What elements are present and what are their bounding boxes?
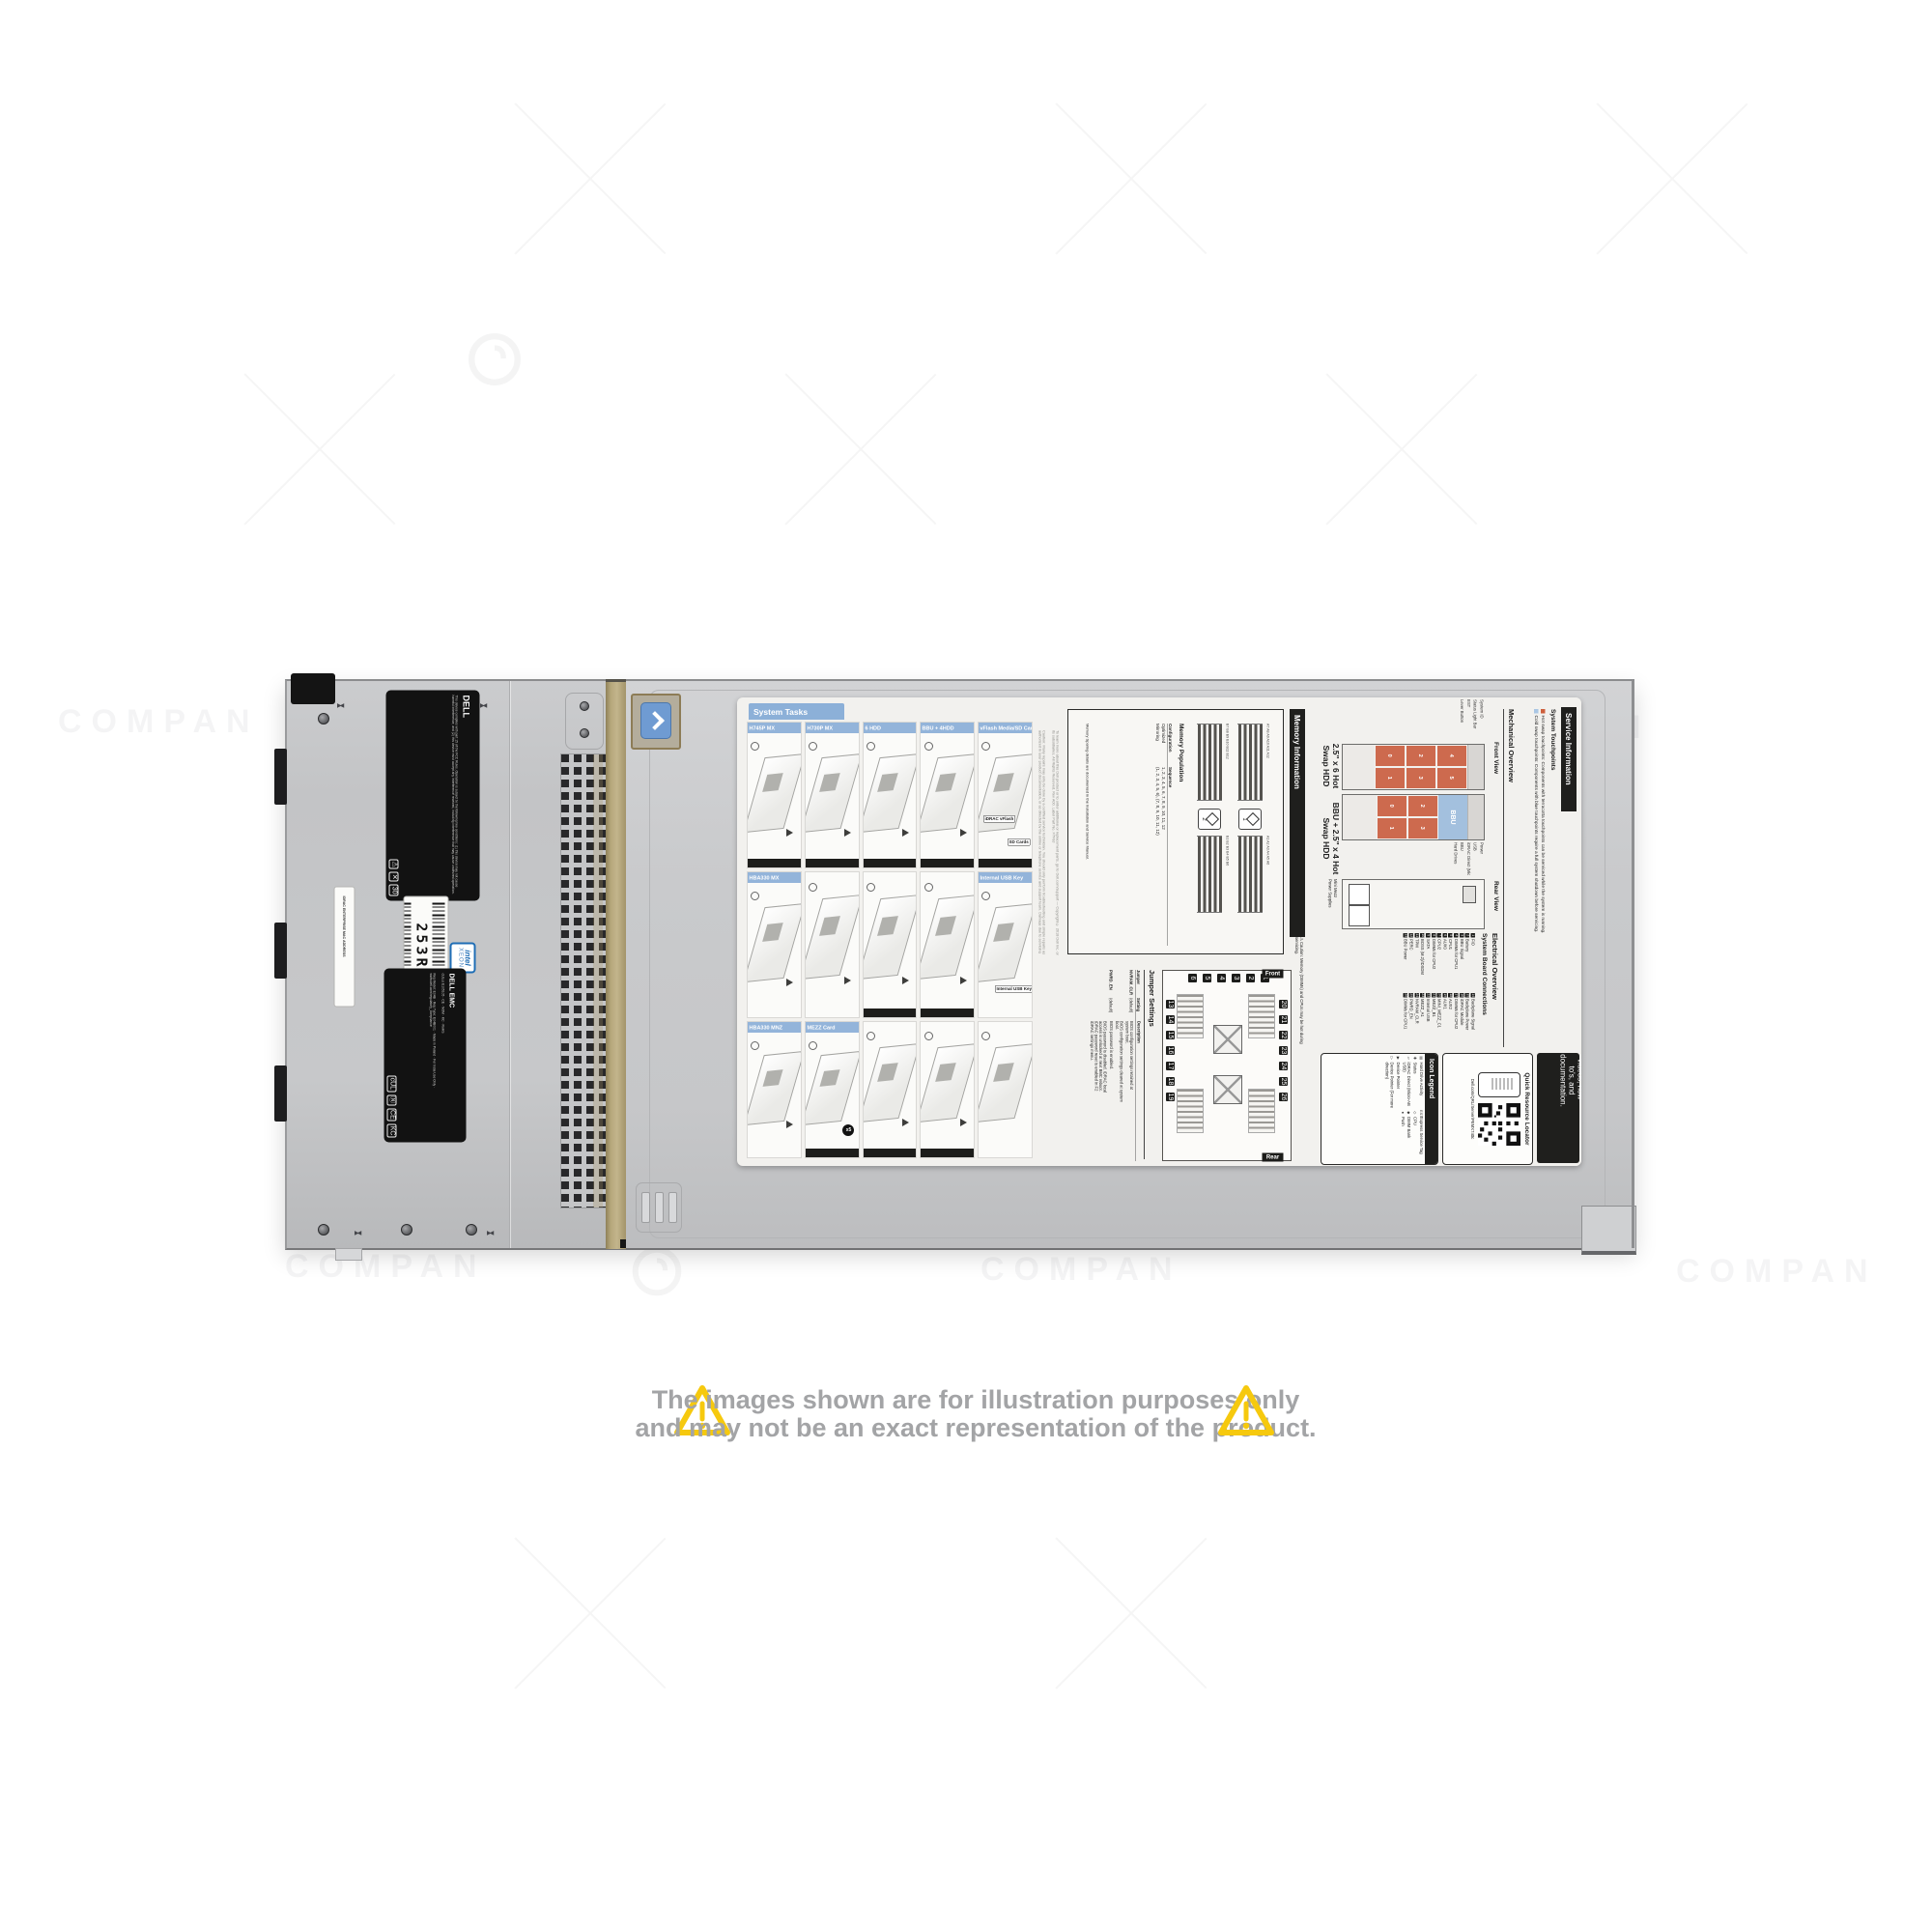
front-view-title: Front View	[1492, 742, 1499, 774]
legend-label: Device Pointer (For more direction)	[1384, 1063, 1394, 1109]
board-connections-col2: 14Backplane Signal15Backplane Power16iDR…	[1309, 993, 1475, 1051]
panel-title: vFlash Media/SD Card	[979, 725, 1032, 731]
jumper-name	[1090, 970, 1108, 996]
connection-number: 25	[1409, 993, 1414, 998]
dimm-slot-group	[1177, 1089, 1204, 1133]
rivet-mark: ▶◀	[487, 1230, 492, 1236]
hot-swap-text: Hot swap touchpoints: Components with te…	[1541, 716, 1547, 934]
panel-title: HBA330 MX	[748, 875, 779, 881]
task-panel-bbu4hdd: BBU + 4HDD	[920, 722, 975, 868]
connection-number: 21	[1432, 993, 1436, 998]
weee-bin-icon: ✕	[389, 872, 399, 882]
board-callout-number: 15	[1166, 1031, 1175, 1039]
connection-label: SATA	[1426, 939, 1431, 949]
connection-number: 7	[1437, 933, 1442, 938]
connection-label: MINI_MEZZ_C1	[1437, 999, 1442, 1028]
connection-label: DIMMs for CPU2	[1432, 939, 1436, 969]
bay-number: 1	[1389, 827, 1395, 830]
connection-label: Backplane Signal	[1470, 999, 1475, 1030]
board-callout-number: 19	[1166, 1093, 1175, 1101]
service-info-zone: Service Information System Touchpoints H…	[1065, 697, 1581, 1166]
edge-connector-tab	[274, 1065, 287, 1122]
release-latch	[291, 673, 335, 704]
dimm-bank: A7 A8 A9 A10 A11 A12	[1237, 724, 1269, 801]
embossed-vents	[636, 1182, 682, 1233]
connection-label: AUX1	[1442, 999, 1447, 1009]
legend-icon: ●	[1400, 1110, 1405, 1116]
connection-number: 11	[1414, 933, 1419, 938]
icon-legend-col2: ESTExpress Service Tag◇CPU◆DIMM Bank●Pus…	[1383, 1110, 1424, 1163]
callout-label: USB	[1471, 842, 1478, 875]
task-panel-internal-usb: Internal USB Key Internal USB Key	[978, 871, 1033, 1018]
jumper-name: NVRAM_CLR	[1124, 970, 1133, 996]
psu-block	[1349, 905, 1370, 926]
connection-number: 23	[1420, 993, 1425, 998]
cert-lines: Reg Model: E04B · Reg Type: E04B001 · Ma…	[429, 974, 437, 1138]
idrac-vflash-tag: iDRAC vFlash	[983, 815, 1015, 823]
panel-title: 6 HDD	[864, 725, 881, 731]
connection-label: DIMMs for CPU1	[1454, 939, 1459, 969]
dimm-bank-labels: B1 B2 B3 B4 B5 B6	[1225, 836, 1229, 912]
connection-number: 13	[1404, 933, 1408, 938]
mac-label-text: IDRAC ENTERPRISE MAC ADDRESS	[342, 896, 346, 957]
task-panel-mezz: MEZZ Card x5	[805, 1021, 860, 1158]
front-callouts-right: PowerUSBiDRAC Direct (Micro-AB USB)BBUHa…	[1340, 842, 1485, 875]
bay-number: 3	[1420, 827, 1426, 830]
watermark-logo-icon	[628, 1242, 686, 1300]
cold-swap-text: Cold swap touchpoints: Components with b…	[1534, 716, 1540, 933]
system-board-connections-title: System Board Connections	[1481, 933, 1488, 1015]
gold-edge-strip	[606, 679, 626, 1249]
callout-label: Power	[1478, 842, 1485, 875]
bay-number: 0	[1389, 805, 1395, 808]
panel-title: H730P MX	[806, 725, 833, 731]
board-rear-label: Rear	[1263, 1153, 1284, 1162]
board-callout-number: 21	[1279, 1015, 1288, 1024]
panel-seam	[509, 681, 510, 1248]
task-illustration	[806, 874, 859, 1015]
watermark-x-icon	[1024, 72, 1236, 285]
board-callout-number: 20	[1279, 1000, 1288, 1009]
bay2-title: BBU + 2.5" x 4 Hot Swap HDD	[1321, 802, 1340, 875]
mini-mezz-block	[1463, 886, 1476, 903]
task-illustration	[979, 1024, 1032, 1155]
qr-code	[1478, 1103, 1520, 1146]
board-callout-number: 17	[1166, 1062, 1175, 1070]
legend-icon: ✚	[1412, 1056, 1417, 1062]
connection-number: 24	[1414, 993, 1419, 998]
task-illustration	[921, 1024, 974, 1155]
task-illustration	[979, 884, 1032, 1015]
connection-label: PWRD_EN	[1409, 999, 1414, 1019]
connection-label: TPM	[1414, 939, 1419, 948]
connection-number: 4	[1454, 933, 1459, 938]
callout-label: Hard Drives	[1452, 842, 1459, 875]
memory-population-table: Configuration Sequence Optimized 1, 2, 3…	[1154, 724, 1173, 946]
cert-marks: cULus E105105 · CE · NOM · KC · RoHS	[441, 974, 445, 1138]
recycle-30-icon: 30	[389, 885, 399, 896]
board-callout-number: 5	[1203, 974, 1211, 982]
connection-number: 18	[1448, 993, 1453, 998]
system-board-map: 20212223242526 123456 13141516171819	[1162, 970, 1292, 1161]
watermark-text: COMPAN	[980, 1251, 1182, 1289]
dell-emc-logo: DELL EMC	[448, 974, 455, 1009]
task-illustration	[921, 874, 974, 1015]
dimm-slot-group	[1248, 1089, 1275, 1133]
cover-release-button	[640, 702, 671, 739]
bay-number: 2	[1418, 754, 1424, 757]
task-panel-grid: H745P MX H730P MX 6 HDD	[747, 722, 1033, 1158]
dimm-bank: B7 B8 B9 B10 B11 B12	[1197, 724, 1229, 801]
cpu-socket	[1213, 1075, 1242, 1104]
connection-number: 22	[1426, 993, 1431, 998]
screw	[401, 1224, 412, 1236]
jumper-name: PWRD_EN	[1108, 970, 1113, 996]
watermark-x-icon	[1565, 72, 1777, 285]
n-mark-icon: Ⓝ	[387, 1094, 397, 1105]
connection-label: PERC	[1409, 939, 1414, 951]
task-panel-hba330mnz: HBA330 MNZ	[747, 1021, 802, 1158]
quick-resource-locator: Quick Resource Locator	[1442, 1053, 1533, 1165]
rear-foot-bracket	[1581, 1206, 1636, 1255]
ul-mark-icon: cUL	[387, 1076, 397, 1092]
connection-number: 20	[1437, 993, 1442, 998]
disclaimer-text: The images shown are for illustration pu…	[541, 1386, 1410, 1442]
connection-label: BBU Signal	[1460, 939, 1464, 959]
bay-number: 5	[1449, 777, 1455, 780]
tasks-caution-text: Caution: Many repairs may only be done b…	[1038, 730, 1045, 959]
connection-label: FIO	[1470, 939, 1475, 946]
x5-badge: x5	[842, 1124, 854, 1136]
edge-connector-tab	[274, 749, 287, 805]
cover-right-edge	[1632, 681, 1634, 1248]
hdd-bays-4: 2301	[1377, 795, 1438, 839]
dell-regulatory-label: DELL This device complies with part 15 o…	[386, 691, 480, 901]
front-view-sled-6hdd: 452301	[1342, 744, 1485, 790]
task-panel-h745p: H745P MX	[747, 722, 802, 868]
task-panel-step	[863, 1021, 918, 1158]
jumper-name	[1115, 970, 1123, 996]
front-foot-tab	[335, 1248, 362, 1261]
callout-label: Status Light Bar	[1471, 699, 1478, 742]
jumper-description: BIOS configuration settings cleared at s…	[1115, 1021, 1123, 1103]
bay-number: 1	[1387, 777, 1393, 780]
legend-label: Device Pointer	[1396, 1063, 1401, 1090]
connection-number: 8	[1432, 933, 1436, 938]
connection-number: 9	[1426, 933, 1431, 938]
connection-number: 19	[1442, 993, 1447, 998]
memory-sparing-note: Memory Sparing details are documented in…	[1086, 724, 1091, 946]
connection-number: 6	[1442, 933, 1447, 938]
task-panel-step	[920, 1021, 975, 1158]
warning-triangle-icon: ⚠	[389, 860, 399, 869]
task-panel-vflash: vFlash Media/SD Card iDRAC vFlash SD Car…	[978, 722, 1033, 868]
cover-release-frame	[631, 694, 681, 750]
connection-label: MEZZ_A1	[1420, 999, 1425, 1017]
task-illustration	[864, 734, 917, 866]
connection-number: 2	[1465, 933, 1470, 938]
kc-mark-icon: KC	[387, 1124, 397, 1138]
jumper-setting: (default)	[1124, 998, 1133, 1019]
mini-mezz-label: Mini Mezz	[1332, 879, 1338, 937]
cold-swap-swatch	[1534, 709, 1539, 714]
task-panel-step	[863, 871, 918, 1018]
rear-view-title: Rear View	[1492, 881, 1499, 911]
bay-number: 4	[1449, 754, 1455, 757]
system-tasks-zone: System Tasks H745P MX H730P MX	[737, 697, 1070, 1166]
tasks-copyright-text: To learn more about this Dell product or…	[1052, 730, 1059, 959]
rivet-mark: ▶◀	[337, 702, 342, 709]
memory-information-bar: Memory Information	[1290, 709, 1305, 937]
qrl-title: Quick Resource Locator	[1523, 1054, 1530, 1164]
screw	[318, 713, 329, 724]
dimm-bank-labels: B7 B8 B9 B10 B11 B12	[1225, 724, 1229, 800]
rivet-mark: ▶◀	[480, 702, 485, 709]
disclaimer: The images shown are for illustration pu…	[0, 1377, 1932, 1463]
dimm-slots	[1197, 724, 1222, 801]
callout-label: iDRAC Direct (Micro-AB USB)	[1465, 842, 1472, 875]
screw	[580, 728, 589, 738]
watermark-x-icon	[753, 343, 966, 555]
watermark-x-icon	[213, 343, 425, 555]
dimm-bank-labels: A1 A2 A3 A4 A5 A6	[1265, 836, 1269, 912]
watermark-x-icon	[1024, 1507, 1236, 1719]
legend-icon: ▱	[1402, 1056, 1411, 1062]
rivet-mark: ▶◀	[355, 1230, 359, 1236]
dimm-slot-group	[1177, 994, 1204, 1038]
electrical-overview-title: Electrical Overview	[1491, 933, 1499, 1000]
connection-number: 1	[1471, 933, 1476, 938]
bbu-block: BBU	[1438, 795, 1467, 839]
dimm-slot-group	[1248, 994, 1275, 1038]
service-information-bar: Service Information	[1561, 707, 1577, 811]
legend-icon: ▤	[1419, 1056, 1424, 1062]
callout-label: Lever Button	[1459, 699, 1465, 742]
front-view-sled-bbu4hdd: BBU 2301	[1342, 794, 1485, 840]
legend-label: Status	[1412, 1063, 1417, 1074]
callout-label: EST	[1465, 699, 1472, 742]
legend-label: iDRAC Direct (Micro-AB USB)	[1402, 1063, 1411, 1109]
system-touchpoints-title: System Touchpoints	[1549, 709, 1556, 770]
product-photo-stage: COMPAN COMPAN COMPAN COMPAN COMPAN COMPA…	[0, 0, 1932, 1932]
board-front-label: Front	[1263, 970, 1284, 979]
chassis-left-panel: ▶◀ ▶◀ ▶◀ ▶◀ DELL This device complies wi…	[285, 679, 628, 1250]
panel-title: Internal USB Key	[979, 875, 1023, 881]
jumper-setting	[1090, 998, 1108, 1019]
rear-view-diagram	[1342, 879, 1485, 929]
panel-title: BBU + 4HDD	[921, 725, 954, 731]
cpu-socket	[1213, 1025, 1242, 1054]
task-illustration	[748, 884, 801, 1015]
watermark-x-icon	[483, 72, 696, 285]
screw	[318, 1224, 329, 1236]
legend-icon: ◆	[1406, 1110, 1411, 1116]
chevron-right-icon	[645, 711, 665, 730]
connection-label: Battery	[1465, 939, 1470, 952]
connection-label: iDRAC Module	[1460, 999, 1464, 1025]
jumper-settings-title: Jumper Settings	[1148, 970, 1156, 1027]
dimm-slots	[1197, 836, 1222, 913]
cpu1-marker: 1	[1238, 809, 1262, 830]
connection-label: DIMMs for CPU1	[1404, 999, 1408, 1029]
sled-status-strip	[1467, 795, 1484, 839]
connection-label: MEZZ_B1	[1432, 999, 1436, 1017]
jumper-setting: (default)	[1108, 998, 1113, 1019]
sd-cards-tag: SD Cards	[1008, 838, 1030, 846]
qrl-scan-note: Scan to see hardware servicing and softw…	[1537, 1053, 1579, 1163]
watermark-logo-icon	[464, 328, 526, 390]
connection-number: 5	[1448, 933, 1453, 938]
task-panel-step	[978, 1021, 1033, 1158]
task-illustration	[748, 1034, 801, 1155]
watermark-text: COMPAN	[58, 703, 260, 741]
edge-connector-tab	[274, 923, 287, 979]
hdd-bays-6: 452301	[1375, 745, 1467, 789]
board-callout-number: 18	[1166, 1077, 1175, 1086]
legend-label: Express Service Tag	[1419, 1117, 1424, 1154]
callout-label: BBU	[1459, 842, 1465, 875]
screw	[580, 701, 589, 711]
jumper-description: BIOS password is disabled. iDRAC local a…	[1090, 1021, 1108, 1103]
board-callout-number: 6	[1188, 974, 1197, 982]
connection-label: CPU2	[1437, 939, 1442, 950]
task-illustration	[864, 1024, 917, 1155]
watermark-text: COMPAN	[285, 1248, 487, 1286]
connection-label: NVRAM_CLR	[1414, 999, 1419, 1024]
top-cover: System Tasks H745P MX H730P MX	[626, 679, 1634, 1250]
task-panel-hba330mx: HBA330 MX	[747, 871, 802, 1018]
icon-legend-title: Icon Legend	[1425, 1054, 1437, 1164]
task-panel-step	[920, 871, 975, 1018]
intel-logo-text: intel	[464, 945, 471, 972]
screw	[466, 1224, 477, 1236]
bay-number: 3	[1418, 777, 1424, 780]
connection-number: 10	[1420, 933, 1425, 938]
jumper-setting	[1115, 998, 1123, 1019]
legend-icon: ▶	[1396, 1056, 1401, 1062]
dimm-bank: A1 A2 A3 A4 A5 A6	[1237, 836, 1269, 913]
jumper-description: BIOS configuration settings retained at …	[1124, 1021, 1133, 1103]
connection-label: Internal USB	[1426, 999, 1431, 1022]
board-connections-col1: 1FIO2Battery3BBU Signal4DIMMs for CPU15C…	[1309, 933, 1475, 991]
connection-label: AUX2	[1448, 999, 1453, 1009]
task-panel-step	[805, 871, 860, 1018]
legend-icon: EST	[1419, 1110, 1424, 1116]
icon-legend-col1: ▤Hard Drive Activity✚Status▱iDRAC Direct…	[1383, 1056, 1424, 1109]
vent-grille	[560, 753, 610, 1208]
task-panel-6hdd: 6 HDD	[863, 722, 918, 868]
dimm-slots	[1237, 724, 1263, 801]
dimm-bank-labels: A7 A8 A9 A10 A11 A12	[1265, 724, 1269, 800]
rear-view-labels: Mini Mezz Power Supplies	[1317, 879, 1338, 937]
dell-logo: DELL	[462, 696, 471, 719]
service-label: System Tasks H745P MX H730P MX	[737, 697, 1581, 1166]
board-callout-number: 23	[1279, 1046, 1288, 1055]
connection-label: Backplane Power	[1465, 999, 1470, 1030]
legend-label: CPU	[1412, 1117, 1417, 1125]
qrl-url: Dell.com/QRL/Server/PEMX740c	[1470, 1054, 1475, 1164]
task-illustration	[806, 734, 859, 866]
warning-triangle-icon	[1215, 1382, 1277, 1440]
connection-number: 3	[1460, 933, 1464, 938]
board-callout-number: 24	[1279, 1062, 1288, 1070]
task-illustration	[806, 1034, 859, 1155]
sled-status-strip	[1467, 745, 1484, 789]
task-panel-h730p: H730P MX	[805, 722, 860, 868]
power-supplies-label: Power Supplies	[1327, 879, 1333, 937]
certification-label: DELL EMC cULus E105105 · CE · NOM · KC ·…	[384, 969, 467, 1143]
callout-label: System ID	[1478, 699, 1485, 742]
legend-icon: ▷	[1384, 1056, 1394, 1062]
regulatory-text: This device complies with part 15 of the…	[451, 696, 459, 896]
board-callout-number: 4	[1217, 974, 1226, 982]
memory-population-box: A7 A8 A9 A10 A11 A12 1 A1 A2 A3 A4 A5 A6…	[1067, 709, 1284, 954]
dimm-bank: B1 B2 B3 B4 B5 B6	[1197, 836, 1229, 913]
bay-number: 2	[1420, 805, 1426, 808]
system-tasks-tab: System Tasks	[749, 703, 844, 720]
panel-title: H745P MX	[748, 725, 775, 731]
mechanical-overview-title: Mechanical Overview	[1507, 709, 1516, 782]
board-callout-number: 25	[1279, 1077, 1288, 1086]
connection-number: 16	[1460, 993, 1464, 998]
jumper-settings-table: Jumper Setting Description NVRAM_CLR (de…	[1088, 970, 1141, 1161]
task-illustration	[979, 734, 1032, 866]
task-illustration	[921, 734, 974, 866]
legend-label: Push	[1400, 1117, 1405, 1126]
cpu2-marker: 2	[1198, 809, 1221, 830]
disclaimer-line1: The images shown are for illustration pu…	[541, 1386, 1410, 1414]
bay-number: 0	[1387, 754, 1393, 757]
connection-number: 15	[1465, 993, 1470, 998]
psu-block	[1349, 884, 1370, 905]
connection-label: AUX0	[1442, 939, 1447, 950]
idrac-mac-label: IDRAC ENTERPRISE MAC ADDRESS	[334, 887, 355, 1008]
connection-label: BBU Power	[1404, 939, 1408, 959]
server-chassis: ▶◀ ▶◀ ▶◀ ▶◀ DELL This device complies wi…	[285, 679, 1634, 1246]
connection-number: 14	[1471, 993, 1476, 998]
board-callout-number: 3	[1232, 974, 1240, 982]
board-callout-number: 14	[1166, 1015, 1175, 1024]
board-callout-number: 16	[1166, 1046, 1175, 1055]
board-callout-number: 22	[1279, 1031, 1288, 1039]
task-illustration	[748, 734, 801, 866]
board-callout-number: 13	[1166, 1000, 1175, 1009]
legend-icon: ◇	[1412, 1110, 1417, 1116]
board-callout-number: 26	[1279, 1093, 1288, 1101]
board-callout-number: 2	[1246, 974, 1255, 982]
connection-number: 26	[1404, 993, 1408, 998]
legend-label: DIMM Bank	[1406, 1117, 1411, 1138]
phone-scan-icon	[1478, 1072, 1520, 1097]
legend-label: Hard Drive Activity	[1419, 1063, 1424, 1096]
connection-number: 17	[1454, 993, 1459, 998]
watermark-x-icon	[1294, 343, 1507, 555]
memory-population-title: Memory Population	[1178, 724, 1184, 781]
connection-label: DIMMs for CPU2	[1454, 999, 1459, 1029]
panel-title: MEZZ Card	[806, 1025, 836, 1031]
disclaimer-line2: and may not be an exact representation o…	[541, 1414, 1410, 1442]
handle-bracket	[565, 693, 604, 750]
dimm-slots	[1237, 836, 1263, 913]
usb-key-tag: Internal USB Key	[995, 985, 1033, 993]
touchpoints-legend: Hot swap touchpoints: Components with te…	[1519, 709, 1546, 1042]
connection-label: BOSS (M.2)/IDSDM	[1420, 939, 1425, 975]
front-callouts-left: System IDStatus Light BarESTLever Button	[1340, 699, 1485, 742]
hot-swap-swatch	[1541, 709, 1546, 714]
bay1-title: 2.5" x 6 Hot Swap HDD	[1321, 732, 1340, 800]
icon-legend: Icon Legend ▤Hard Drive Activity✚Status▱…	[1321, 1053, 1438, 1165]
xeon-text: XEON	[458, 945, 464, 972]
